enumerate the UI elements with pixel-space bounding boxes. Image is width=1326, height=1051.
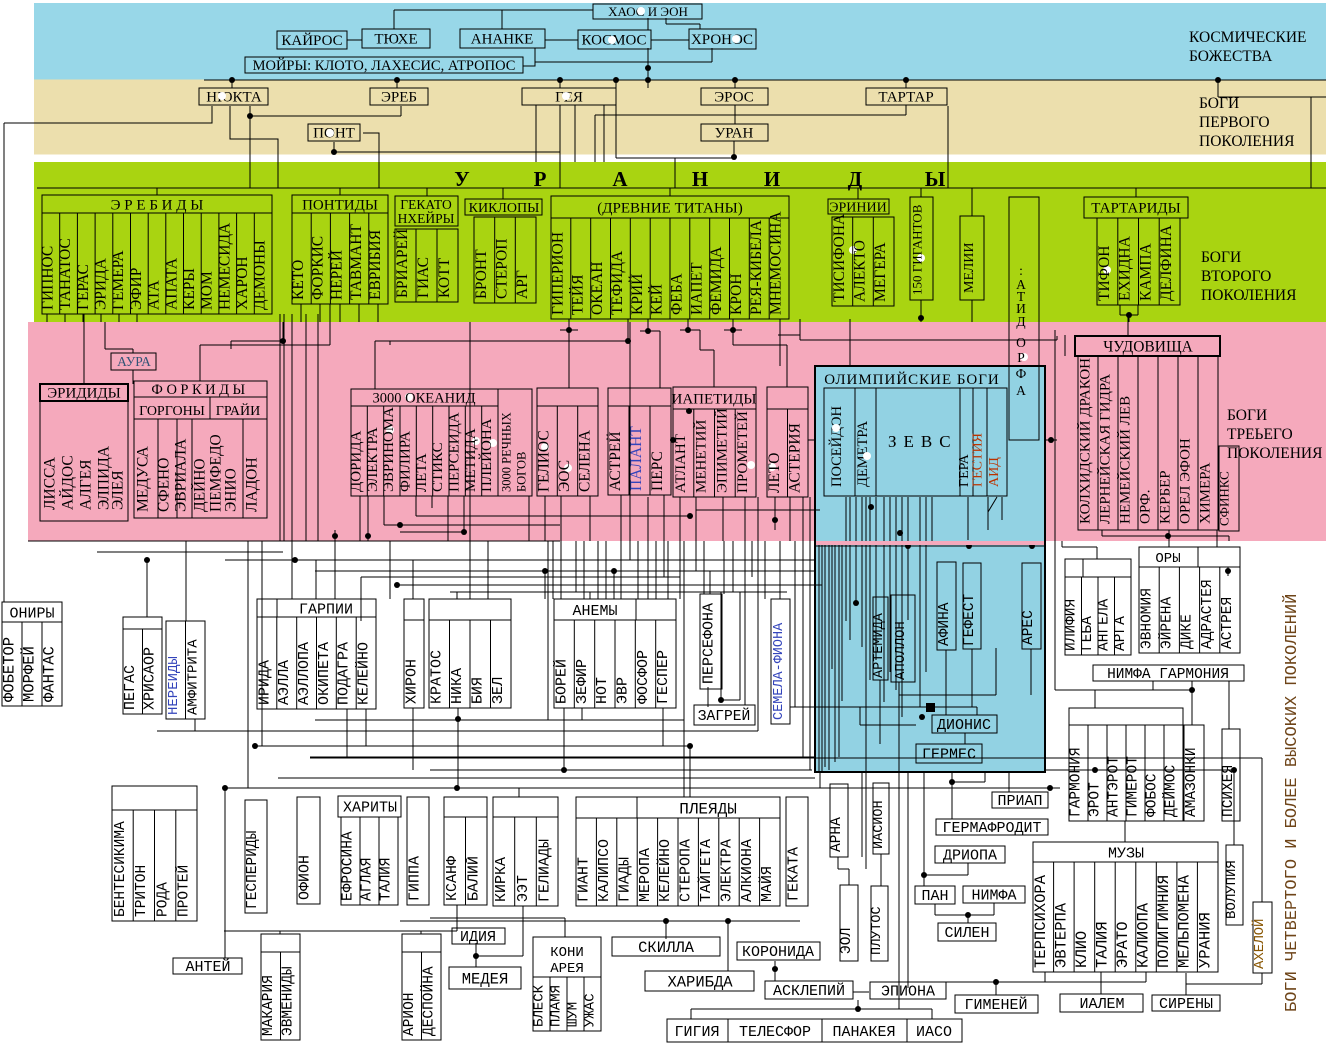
svg-text:ПЕРС: ПЕРС [649,451,666,491]
svg-text:ЗЕФИР: ЗЕФИР [574,659,591,704]
svg-text:АЛКИОНА: АЛКИОНА [739,839,756,902]
svg-text:МЕРОПА: МЕРОПА [637,848,654,902]
svg-text:АУРА: АУРА [117,354,151,369]
svg-text:ГИМЕРОТ: ГИМЕРОТ [1126,756,1142,817]
svg-text:МОМ: МОМ [199,271,216,310]
svg-text:БОГИ ЧЕТВЕРТОГО И БОЛЕЕ ВЫСОКИ: БОГИ ЧЕТВЕРТОГО И БОЛЕЕ ВЫСОКИХ ПОКОЛЕНИ… [1281,594,1302,1012]
svg-text:ФОРКИДЫ: ФОРКИДЫ [151,382,248,398]
svg-text:ЭВТЕРПА: ЭВТЕРПА [1052,902,1070,968]
svg-text:АХЕЛОЙ: АХЕЛОЙ [1251,919,1268,969]
svg-text:ГЕСПЕРИДЫ: ГЕСПЕРИДЫ [245,831,261,909]
svg-text:ПОСЕЙДОН: ПОСЕЙДОН [828,406,845,487]
svg-text:АТЛАНТ: АТЛАНТ [673,434,689,493]
svg-text:КОРОНИДА: КОРОНИДА [742,944,814,961]
svg-text:ЭВР: ЭВР [615,677,632,704]
svg-text:ПОКОЛЕНИЯ: ПОКОЛЕНИЯ [1201,287,1296,304]
svg-text:СФЕНО: СФЕНО [156,458,173,512]
svg-text:МЕНЕТИЙ: МЕНЕТИЙ [693,420,710,493]
svg-text:ДИКЕ: ДИКЕ [1180,614,1196,649]
svg-text:ДЕЛФИНА: ДЕЛФИНА [1158,224,1175,301]
svg-text:НИМФА ГАРМОНИЯ: НИМФА ГАРМОНИЯ [1107,667,1229,683]
svg-text:НЕМЕСИДА: НЕМЕСИДА [216,222,233,310]
svg-text:ПАЛАНТ: ПАЛАНТ [628,426,645,491]
svg-text:СТЕРОП: СТЕРОП [494,239,511,299]
svg-text:ОКЕАН: ОКЕАН [589,262,606,315]
svg-text:КРИЙ: КРИЙ [629,274,646,315]
svg-text:КАМПА: КАМПА [1138,242,1155,301]
svg-text:ХРИСАОР: ХРИСАОР [142,647,159,710]
svg-text:ПЕГАС: ПЕГАС [122,665,139,710]
svg-text:Ы: Ы [925,167,946,191]
svg-text:ФОСФОР: ФОСФОР [635,650,652,704]
svg-text:УРАН: УРАН [715,126,754,142]
svg-text:ПЛАМЯ: ПЛАМЯ [549,985,565,1027]
svg-text:ПЛУТОС: ПЛУТОС [870,906,885,955]
svg-text:АНГЕЛА: АНГЕЛА [1097,598,1113,651]
svg-text:АПОЛЛОН: АПОЛЛОН [893,621,909,680]
svg-text:СИЛЕН: СИЛЕН [944,925,989,942]
svg-text:ГЕРАС: ГЕРАС [75,264,92,310]
svg-text:ОКИПЕТА: ОКИПЕТА [316,642,333,705]
svg-text:ТЕЙЯ: ТЕЙЯ [569,275,586,315]
svg-text:АНЕМЫ: АНЕМЫ [572,603,617,620]
svg-text:РЕЯ-КИБЕЛА: РЕЯ-КИБЕЛА [748,219,765,315]
svg-text:МОРФЕЙ: МОРФЕЙ [21,646,39,702]
svg-text:КОТТ: КОТТ [436,257,453,298]
svg-text:Р: Р [1017,350,1025,365]
svg-text:ГИГИЯ: ГИГИЯ [674,1024,719,1041]
svg-text:ЭЭТ: ЭЭТ [515,875,532,902]
svg-text:ГЕРМЕС: ГЕРМЕС [922,747,976,764]
svg-text:МЕДУСА: МЕДУСА [135,445,152,512]
svg-text:ЭОЛ: ЭОЛ [839,928,855,954]
svg-text:ТИСИФОНА: ТИСИФОНА [831,213,848,302]
svg-text:СЕЛЕНА: СЕЛЕНА [576,429,593,492]
svg-text:ПЛЕЙОНА: ПЛЕЙОНА [478,418,495,492]
svg-text:МАКАРИЯ: МАКАРИЯ [261,975,277,1036]
svg-text:КОНИ: КОНИ [550,945,584,961]
svg-text:ГИПЕРИОН: ГИПЕРИОН [550,232,567,315]
svg-text:КОЛХИДСКИЙ ДРАКОН: КОЛХИДСКИЙ ДРАКОН [1076,358,1093,524]
svg-text:МЕЛИИ: МЕЛИИ [962,242,977,293]
svg-text:ТЕФИДА: ТЕФИДА [609,250,626,315]
svg-text:БЛЕСК: БЛЕСК [532,984,548,1027]
svg-text:ЭЛЕЯ: ЭЛЕЯ [110,470,127,510]
svg-text:ЭРИНИИ: ЭРИНИИ [829,200,886,215]
svg-text:БАЛИЙ: БАЛИЙ [466,856,483,901]
svg-text:АРНА: АРНА [829,817,845,852]
svg-text:АМФИТРИТА: АМФИТРИТА [185,639,201,715]
svg-text:ПОКОЛЕНИЯ: ПОКОЛЕНИЯ [1199,133,1294,150]
svg-text:ДЕСПОЙНА: ДЕСПОЙНА [421,966,438,1036]
svg-text:АЭЛЛА: АЭЛЛА [276,660,293,705]
svg-text:АНТЕЙ: АНТЕЙ [185,959,230,976]
svg-text:КРОН: КРОН [728,273,745,315]
svg-text:ЛИССА: ЛИССА [42,456,59,510]
svg-text:Р: Р [534,167,547,191]
svg-text:КЛИО: КЛИО [1073,931,1091,968]
svg-text:МАЙЯ: МАЙЯ [759,866,776,902]
svg-text:ИРИДА: ИРИДА [256,660,273,705]
svg-text:ТАВМАНТ: ТАВМАНТ [348,224,365,300]
svg-text:ГЕЛИОС: ГЕЛИОС [536,430,553,492]
svg-text:ТЕРПСИХОРА: ТЕРПСИХОРА [1032,874,1050,968]
svg-text:ЭВМЕНИДЫ: ЭВМЕНИДЫ [281,966,297,1036]
svg-text:ЭЛЕКТРА: ЭЛЕКТРА [365,427,381,492]
svg-text:И: И [764,167,780,191]
svg-text:ОФИОН: ОФИОН [296,855,313,900]
svg-text:ОРЫ: ОРЫ [1155,551,1180,567]
svg-text:КИКЛОПЫ: КИКЛОПЫ [469,201,540,216]
svg-text:ЛЕТА: ЛЕТА [414,453,430,492]
svg-text:АПАТА: АПАТА [163,257,180,310]
svg-text:ПЕРСЕИДА: ПЕРСЕИДА [447,412,463,492]
svg-text:ТЮХЕ: ТЮХЕ [374,32,417,48]
svg-text:ИЛИФИЯ: ИЛИФИЯ [1064,599,1080,651]
svg-text:3000 ОКЕАНИД: 3000 ОКЕАНИД [373,391,476,407]
svg-text:НИМФА: НИМФА [971,888,1016,905]
svg-text:Ф: Ф [1016,366,1027,381]
svg-text:ГЕКАТА: ГЕКАТА [785,847,802,901]
svg-text:ФЕМИДА: ФЕМИДА [708,246,725,315]
svg-text:ПРОМЕТЕЙ: ПРОМЕТЕЙ [734,411,751,493]
svg-text:АСТЕРИЯ: АСТЕРИЯ [786,423,803,493]
svg-text:ФОБЕТОР: ФОБЕТОР [1,637,19,702]
svg-text:БЕНТЕСИКИМА: БЕНТЕСИКИМА [113,821,129,917]
svg-text:ГЕСПЕР: ГЕСПЕР [655,650,672,704]
svg-text:ГЕБА: ГЕБА [1080,616,1096,651]
svg-text:НЕМЕЙСКИЙ ЛЕВ: НЕМЕЙСКИЙ ЛЕВ [1116,396,1133,524]
svg-text:БОГОВ: БОГОВ [515,452,529,492]
svg-text:150 ГИГАНТОВ: 150 ГИГАНТОВ [910,204,925,295]
svg-text:НИКА: НИКА [449,668,466,704]
svg-text:ГЕРМАФРОДИТ: ГЕРМАФРОДИТ [942,820,1041,837]
svg-text:ЗЕВС: ЗЕВС [888,432,958,451]
svg-text:ИДИЯ: ИДИЯ [460,929,496,946]
svg-text:ДЕМОНЫ: ДЕМОНЫ [252,240,269,310]
svg-text:ТИФОН: ТИФОН [1096,246,1113,301]
svg-text:КЕЙ: КЕЙ [649,284,666,315]
svg-text:АРЕЯ: АРЕЯ [550,961,584,977]
svg-text:МЕТИДА: МЕТИДА [463,428,479,492]
svg-text:НОТ: НОТ [594,677,611,704]
svg-text:А: А [612,167,628,191]
svg-text:МЕДЕЯ: МЕДЕЯ [462,970,509,988]
svg-text:КИРКА: КИРКА [493,857,510,902]
svg-text:ЭФИР: ЭФИР [128,268,145,310]
svg-text:3000 РЕЧНЫХ: 3000 РЕЧНЫХ [500,412,514,492]
svg-text:ОРФ.: ОРФ. [1137,489,1153,524]
svg-text:ЭРОС: ЭРОС [714,90,753,106]
svg-text:ХАОС И ЭОН: ХАОС И ЭОН [608,4,688,19]
svg-text:ЛЕРНЕЙСКАЯ ГИДРА: ЛЕРНЕЙСКАЯ ГИДРА [1096,374,1113,524]
svg-text:ЭВРИНОМА: ЭВРИНОМА [381,407,397,492]
svg-text:ТАЛИЯ: ТАЛИЯ [1094,921,1112,968]
svg-text:АРТЕМИДА: АРТЕМИДА [872,612,887,678]
svg-text:ТАРТАР: ТАРТАР [878,90,933,106]
svg-text:БОГИ: БОГИ [1199,95,1239,112]
svg-text:КОСМИЧЕСКИЕ: КОСМИЧЕСКИЕ [1189,29,1307,46]
svg-text:АСТРЕЯ: АСТРЕЯ [1220,597,1236,649]
svg-text:ЭВНОМИЯ: ЭВНОМИЯ [1139,588,1155,649]
svg-text:КЕРЫ: КЕРЫ [181,268,198,310]
svg-text:УЖАС: УЖАС [583,993,599,1027]
svg-text:ФАНТАС: ФАНТАС [41,646,59,702]
svg-text:Э Р Е Б И Д Ы: Э Р Е Б И Д Ы [111,197,204,213]
svg-text:ШУМ: ШУМ [566,1002,582,1027]
svg-text:СТЕРОПА: СТЕРОПА [678,839,695,902]
svg-text:ПОДАГРА: ПОДАГРА [336,642,353,705]
svg-text:ФИЛИРА: ФИЛИРА [398,431,414,492]
svg-text:НЕРЕИДЫ: НЕРЕИДЫ [166,656,182,715]
svg-text:ИАСИОН: ИАСИОН [872,800,887,849]
svg-text:БОЖЕСТВА: БОЖЕСТВА [1189,48,1273,65]
svg-text:ТАРТАРИДЫ: ТАРТАРИДЫ [1091,201,1181,217]
svg-text:ЕХИДНА: ЕХИДНА [1117,235,1134,301]
svg-text:АФИНА: АФИНА [937,602,953,646]
svg-text:АЙДОС: АЙДОС [60,455,77,510]
svg-text:КСАНФ: КСАНФ [444,856,461,901]
svg-text:АИД: АИД [987,457,1002,487]
svg-text:О: О [1016,335,1026,350]
svg-text:АЛГЕЯ: АЛГЕЯ [78,460,95,510]
svg-text:ВОЛУПИЯ: ВОЛУПИЯ [1224,860,1240,919]
svg-text:Н: Н [692,167,708,191]
svg-text:ДОРИДА: ДОРИДА [349,431,365,492]
svg-text:ЭПИМЕТИЙ: ЭПИМЕТИЙ [713,408,730,493]
svg-text:БОГИ: БОГИ [1227,407,1267,424]
svg-text:СТИКС: СТИКС [430,442,446,492]
svg-text:ГЕФЕСТ: ГЕФЕСТ [962,593,978,646]
svg-text:ГИПНОС: ГИПНОС [39,246,56,310]
svg-text:ЭНИО: ЭНИО [223,468,240,512]
svg-text:АТА: АТА [146,279,163,310]
svg-text:ФЕБА: ФЕБА [669,273,686,315]
svg-text:ОРЕЛ ЭФОН: ОРЕЛ ЭФОН [1177,438,1193,524]
svg-text:ПЕРСЕФОНА: ПЕРСЕФОНА [700,603,717,684]
svg-text:А: А [1016,383,1026,398]
svg-text:ГИАДЫ: ГИАДЫ [616,857,633,902]
svg-text:ПАНАКЕЯ: ПАНАКЕЯ [832,1024,895,1041]
svg-text:ПОКОЛЕНИЯ: ПОКОЛЕНИЯ [1227,445,1322,462]
svg-text:ЭЛЕКТРА: ЭЛЕКТРА [718,839,735,902]
svg-text:Д: Д [848,167,863,191]
svg-text:ДЕЙМОС: ДЕЙМОС [1163,764,1180,817]
svg-text:ИАЛЕМ: ИАЛЕМ [1079,996,1124,1013]
svg-text:ЭРИДА: ЭРИДА [93,257,110,310]
svg-text:МУЗЫ: МУЗЫ [1108,845,1144,862]
svg-text:КАЛИПСО: КАЛИПСО [596,839,613,902]
svg-text:КЕЛЕЙНО: КЕЛЕЙНО [356,642,373,705]
svg-text:БРОНТ: БРОНТ [473,249,490,299]
svg-text:РОДА: РОДА [155,882,171,917]
svg-text:ЭРАТО: ЭРАТО [1114,921,1132,968]
svg-text:(ДРЕВНИЕ ТИТАНЫ): (ДРЕВНИЕ ТИТАНЫ) [597,200,742,216]
svg-text:ПОНТ: ПОНТ [313,126,355,142]
svg-text:ЭЙРЕНА: ЭЙРЕНА [1159,596,1176,649]
svg-text:ОЛИМПИЙСКИЕ БОГИ: ОЛИМПИЙСКИЕ БОГИ [824,371,1000,388]
svg-text:АРЕС: АРЕС [1021,610,1037,645]
svg-text:ТРЕЬЕГО: ТРЕЬЕГО [1227,426,1293,443]
svg-text:ПОНТИДЫ: ПОНТИДЫ [302,197,378,213]
svg-text:ПЛЕЯДЫ: ПЛЕЯДЫ [679,800,737,818]
svg-text:ГРАЙИ: ГРАЙИ [216,402,260,419]
svg-text:ИАПЕТИДЫ: ИАПЕТИДЫ [672,391,757,407]
svg-text:НЕРЕЙ: НЕРЕЙ [329,250,346,300]
svg-text:ГИППА: ГИППА [406,856,423,901]
svg-text:ИАПЕТ: ИАПЕТ [688,262,705,315]
svg-text:АЛЕКТО: АЛЕКТО [852,240,869,302]
svg-text:СФИНКС: СФИНКС [1217,471,1232,526]
svg-text:АСКЛЕПИЙ: АСКЛЕПИЙ [773,983,845,1000]
svg-text:АНТЭРОТ: АНТЭРОТ [1107,756,1123,817]
svg-text:ХАРИБДА: ХАРИБДА [667,973,733,991]
svg-text:ТАНАТОС: ТАНАТОС [57,238,74,310]
svg-text:ГИАНТ: ГИАНТ [576,857,593,902]
svg-text:ЛАДОН: ЛАДОН [244,457,261,512]
svg-text:ХРОНОС: ХРОНОС [691,32,753,48]
svg-text:ГИМЕНЕЙ: ГИМЕНЕЙ [964,997,1027,1014]
svg-text:АРГА: АРГА [1113,616,1129,651]
svg-text:ЗЕЛ: ЗЕЛ [490,677,507,704]
svg-text:ИАСО: ИАСО [916,1024,952,1041]
svg-text:ЭВРИАЛА: ЭВРИАЛА [173,438,190,512]
svg-text:АГЛАЯ: АГЛАЯ [360,857,376,901]
svg-text:АРИОН: АРИОН [402,992,418,1036]
svg-text:ГЕКАТО: ГЕКАТО [400,197,452,212]
svg-text:ЧУДОВИЩА: ЧУДОВИЩА [1103,338,1193,355]
svg-text:ДЕЙНО: ДЕЙНО [192,458,209,512]
svg-text:ОНИРЫ: ОНИРЫ [9,605,54,622]
svg-text:ТЕЛЕСФОР: ТЕЛЕСФОР [739,1024,811,1041]
svg-text:ГАРПИИ: ГАРПИИ [299,601,353,618]
svg-text:КРАТОС: КРАТОС [429,650,446,704]
svg-text:МНЕМОСИНА: МНЕМОСИНА [768,211,785,315]
svg-text:ЭРИДИДЫ: ЭРИДИДЫ [47,386,120,402]
svg-text:ХИМЕРА: ХИМЕРА [1197,462,1213,524]
svg-text:КАЙРОС: КАЙРОС [281,32,342,49]
svg-text:АРГ: АРГ [514,270,531,299]
svg-text:ТАЛИЯ: ТАЛИЯ [379,857,395,901]
svg-text:ГОРГОНЫ: ГОРГОНЫ [139,404,205,419]
svg-text:ФОРКИС: ФОРКИС [309,236,326,300]
svg-text:АСТРЕЙ: АСТРЕЙ [607,431,624,491]
svg-text:ДИОНИС: ДИОНИС [937,717,991,734]
svg-text:ДРИОПА: ДРИОПА [943,848,997,865]
svg-text:БОГИ: БОГИ [1201,249,1241,266]
svg-text:КЕРБЕР: КЕРБЕР [1157,470,1173,524]
svg-text:ТРИТОН: ТРИТОН [134,865,150,917]
svg-text:СЕМЕЛА-ФИОНА: СЕМЕЛА-ФИОНА [772,622,787,720]
svg-text:КАЛИОПА: КАЛИОПА [1135,902,1153,968]
svg-text:У: У [454,167,469,191]
svg-text:ХАРОН: ХАРОН [234,256,251,310]
svg-text:МЕГЕРА: МЕГЕРА [872,242,889,302]
svg-text:МОЙРЫ: КЛОТО, ЛАХЕСИС, АТРОПОС: МОЙРЫ: КЛОТО, ЛАХЕСИС, АТРОПОС [253,57,516,74]
svg-text:ЕВРИБИЯ: ЕВРИБИЯ [367,230,384,300]
svg-text:ПЕРВОГО: ПЕРВОГО [1199,114,1270,131]
svg-text:АНАНКЕ: АНАНКЕ [471,32,534,48]
svg-text:УРАНИЯ: УРАНИЯ [1196,912,1214,968]
svg-text:КЕЛЕЙНО: КЕЛЕЙНО [657,839,674,902]
svg-text:ПОЛИГИМНИЯ: ПОЛИГИМНИЯ [1155,875,1173,968]
svg-text:ТАЙГЕТА: ТАЙГЕТА [698,839,715,902]
svg-text:ГИАС: ГИАС [415,257,432,298]
svg-text:ГЕМЕРА: ГЕМЕРА [110,250,127,310]
svg-text:ЭРЕБ: ЭРЕБ [381,90,417,106]
svg-text:ПАН: ПАН [921,888,948,905]
svg-text:НХЕЙРЫ: НХЕЙРЫ [398,211,455,226]
svg-text:ЕФРОСИНА: ЕФРОСИНА [341,831,357,901]
svg-text:ЛЕТО: ЛЕТО [766,453,783,493]
svg-text::: : [1019,263,1023,278]
svg-text:Д: Д [1016,314,1025,329]
svg-text:АЭЛЛОПА: АЭЛЛОПА [296,642,313,705]
svg-text:АДРАСТЕЯ: АДРАСТЕЯ [1200,579,1216,649]
svg-text:ФОБОС: ФОБОС [1145,773,1161,817]
svg-text:ЗАГРЕЙ: ЗАГРЕЙ [698,708,751,725]
svg-text:ЭРОТ: ЭРОТ [1088,782,1104,817]
svg-text:СИРЕНЫ: СИРЕНЫ [1159,996,1213,1013]
svg-text:КЕТО: КЕТО [290,260,307,300]
svg-text:ПРИАП: ПРИАП [997,793,1042,810]
svg-text:ХАРИТЫ: ХАРИТЫ [343,800,397,817]
svg-text:БОРЕЙ: БОРЕЙ [554,659,571,704]
svg-text:ГЕЛИАДЫ: ГЕЛИАДЫ [537,839,554,902]
svg-text:ХИРОН: ХИРОН [403,659,420,704]
svg-text:ВТОРОГО: ВТОРОГО [1201,268,1271,285]
svg-text:БИЯ: БИЯ [470,677,487,704]
svg-text:ЭОС: ЭОС [556,460,573,492]
svg-text:БРИАРЕЙ: БРИАРЕЙ [394,229,411,298]
svg-text:МЕЛЬПОМЕНА: МЕЛЬПОМЕНА [1176,874,1194,968]
svg-text:ПРОТЕЙ: ПРОТЕЙ [176,865,193,917]
svg-text:СКИЛЛА: СКИЛЛА [638,939,695,957]
svg-text:ГЕСТИЯ: ГЕСТИЯ [971,433,986,487]
svg-text:НЮКТА: НЮКТА [206,90,262,106]
